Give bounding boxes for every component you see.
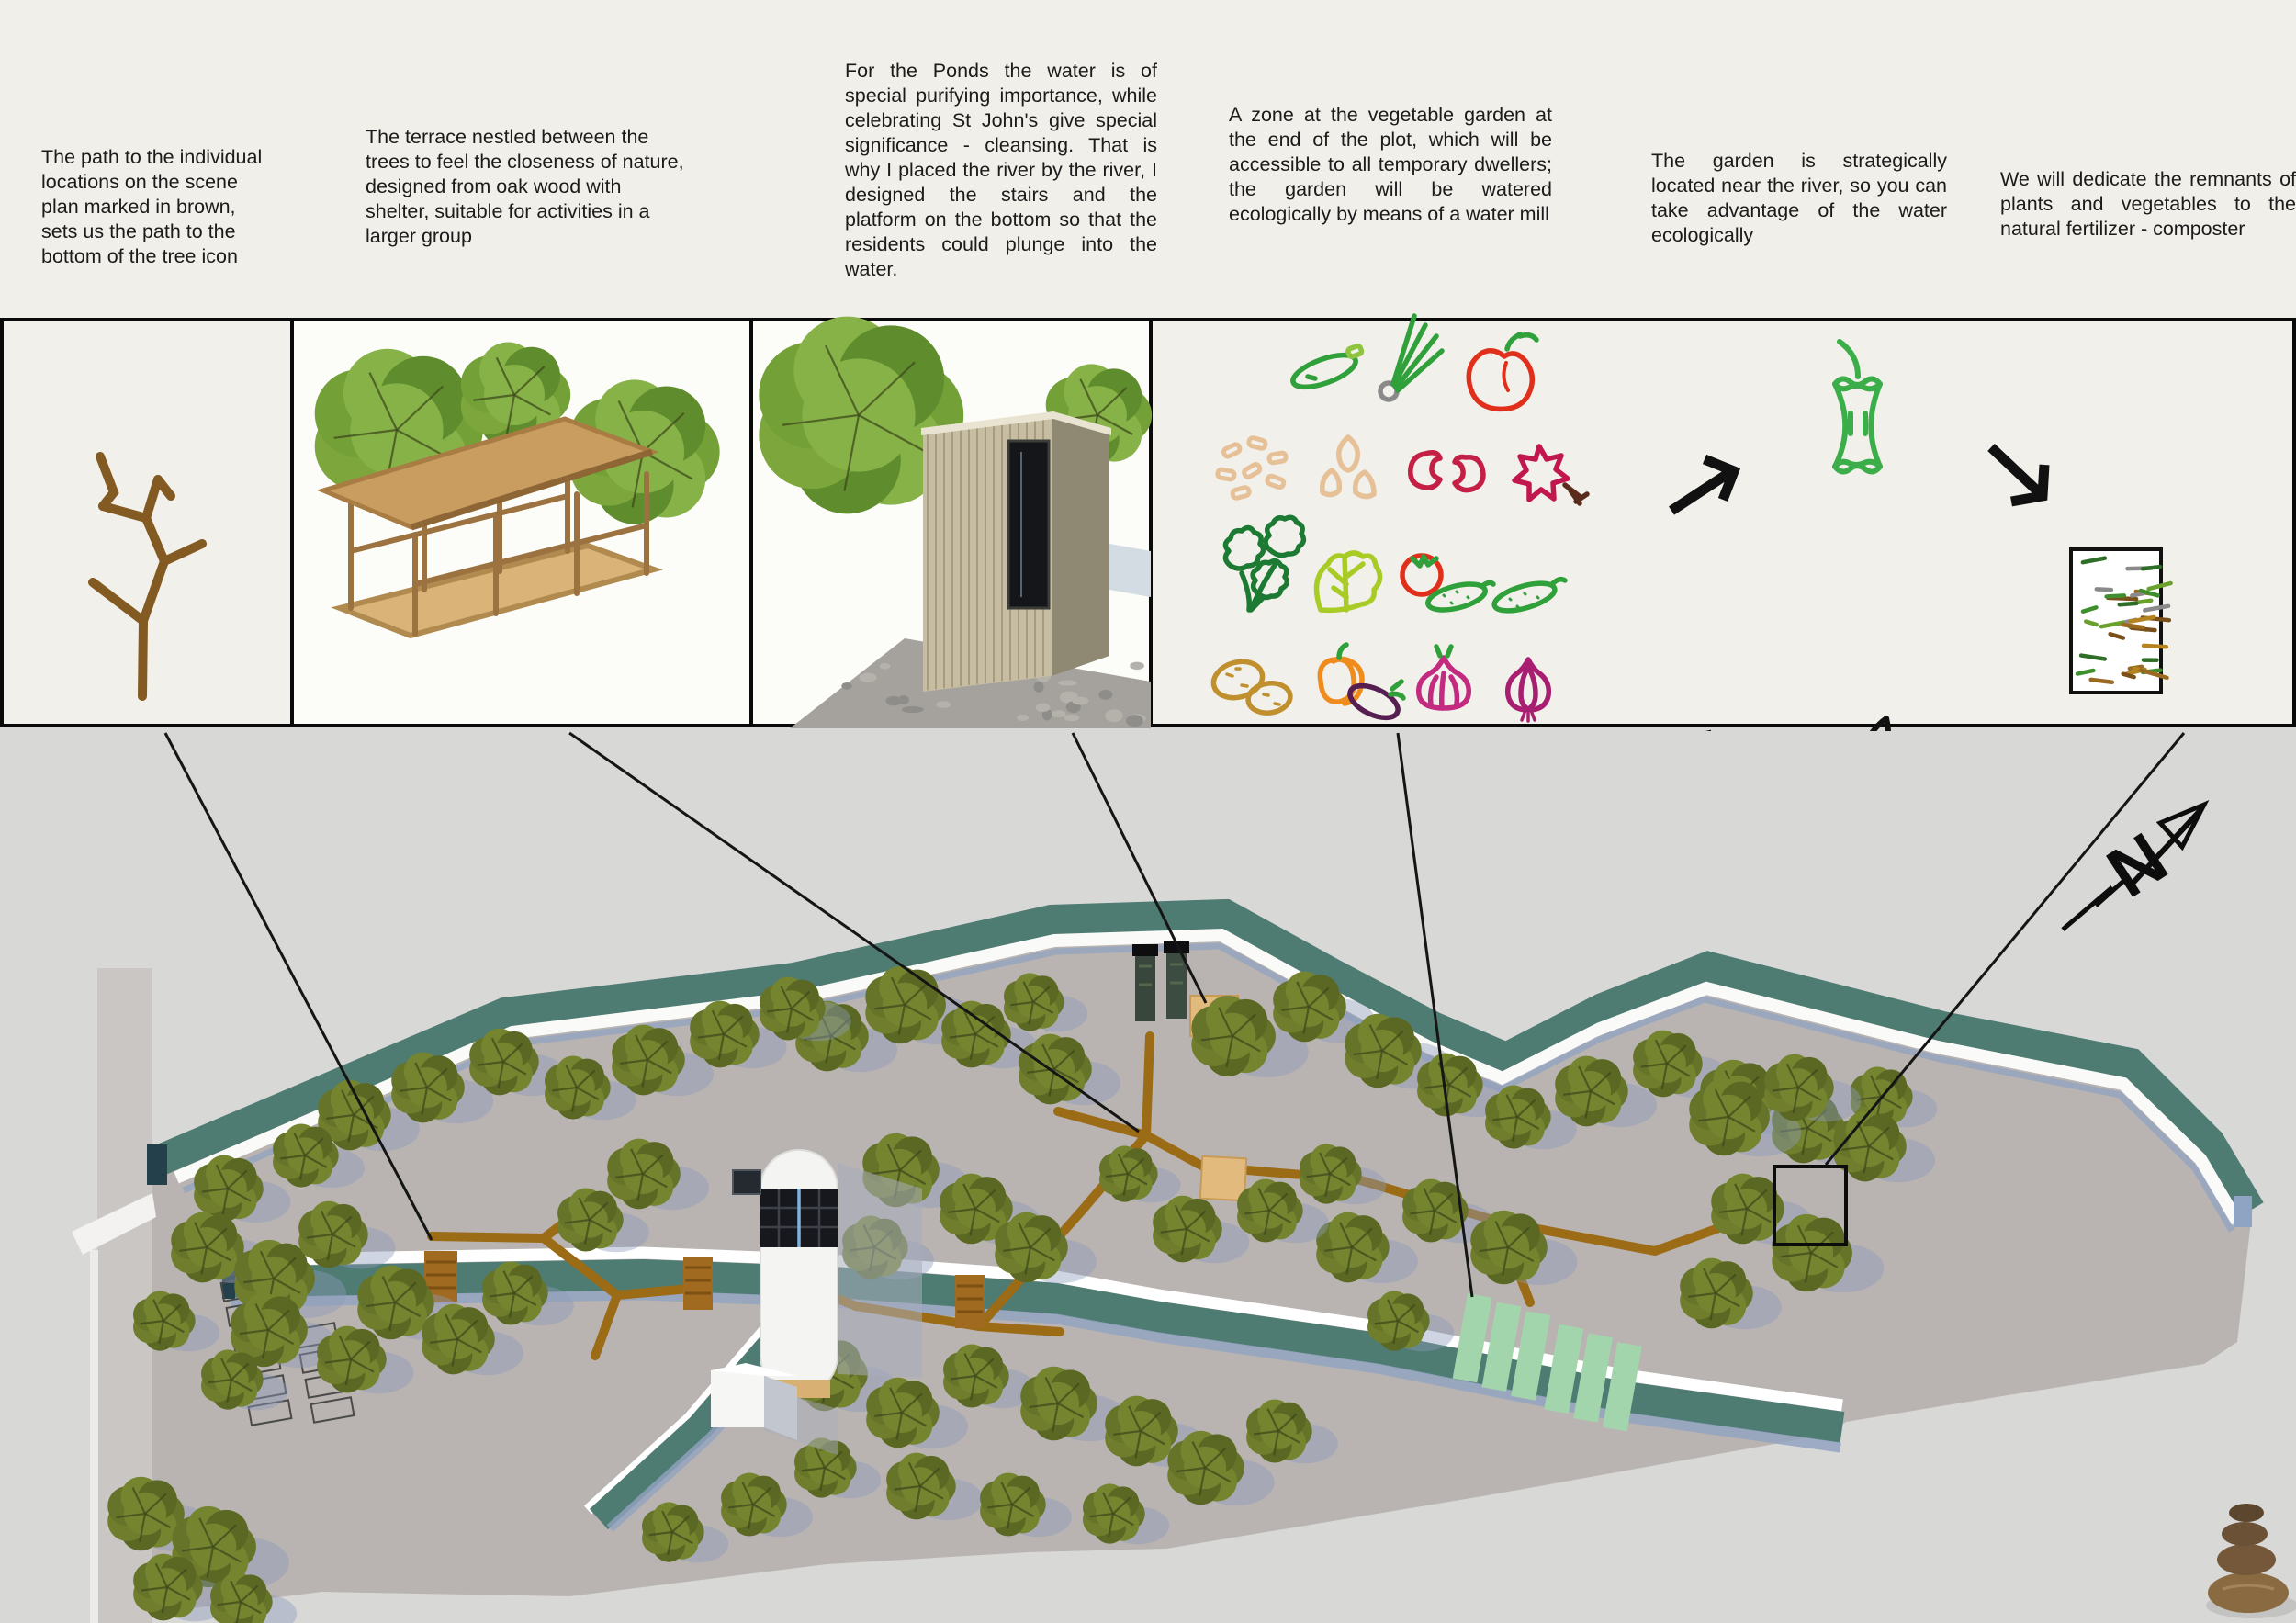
beans-icon [1217,437,1286,499]
vegetable-icons [1210,316,1587,725]
pepper-icon [1469,334,1536,409]
lettuce-icon [1317,553,1380,610]
star-anise-icon [1514,446,1587,503]
pumpkin-eggplant-icon [1320,645,1403,725]
kidney-beans-icon [1411,453,1483,490]
wooden-terrace-render [315,342,720,636]
compost-bin-icon [2071,549,2171,693]
parsley-icon [1225,517,1303,610]
tree-path-icon [93,456,202,696]
main-building [733,1150,922,1398]
cycle-arrows [1671,447,2044,731]
masterplan: N [0,731,2296,1623]
rooftop-panel [733,1170,760,1194]
arrow-se-icon [1991,447,2044,502]
cabin-window [1008,441,1049,608]
north-arrow-icon: N [2063,805,2204,930]
potatoes-icon [1210,657,1292,716]
panel-graphics [0,0,2296,731]
bridge [955,1275,985,1328]
stone-cairn-icon [2206,1504,2296,1618]
compost-cycle [1671,342,2171,731]
wooden-cabin-render [759,317,1152,728]
arrow-ne-icon [1671,459,1734,511]
tomato-cucumber-icon [1402,556,1493,614]
seedling-hand-icon [1813,718,1932,731]
spring-onion-icon [1380,316,1442,400]
wood-platform [1200,1156,1246,1200]
zucchini-icon [1289,345,1363,394]
garlic-icon [1419,647,1469,708]
cucumber-icon [1491,578,1565,616]
seeds-icon [1322,437,1374,497]
bridge [683,1257,713,1310]
apple-core-icon [1835,342,1880,472]
pool-water [1109,544,1151,597]
onion-icon [1508,659,1549,721]
